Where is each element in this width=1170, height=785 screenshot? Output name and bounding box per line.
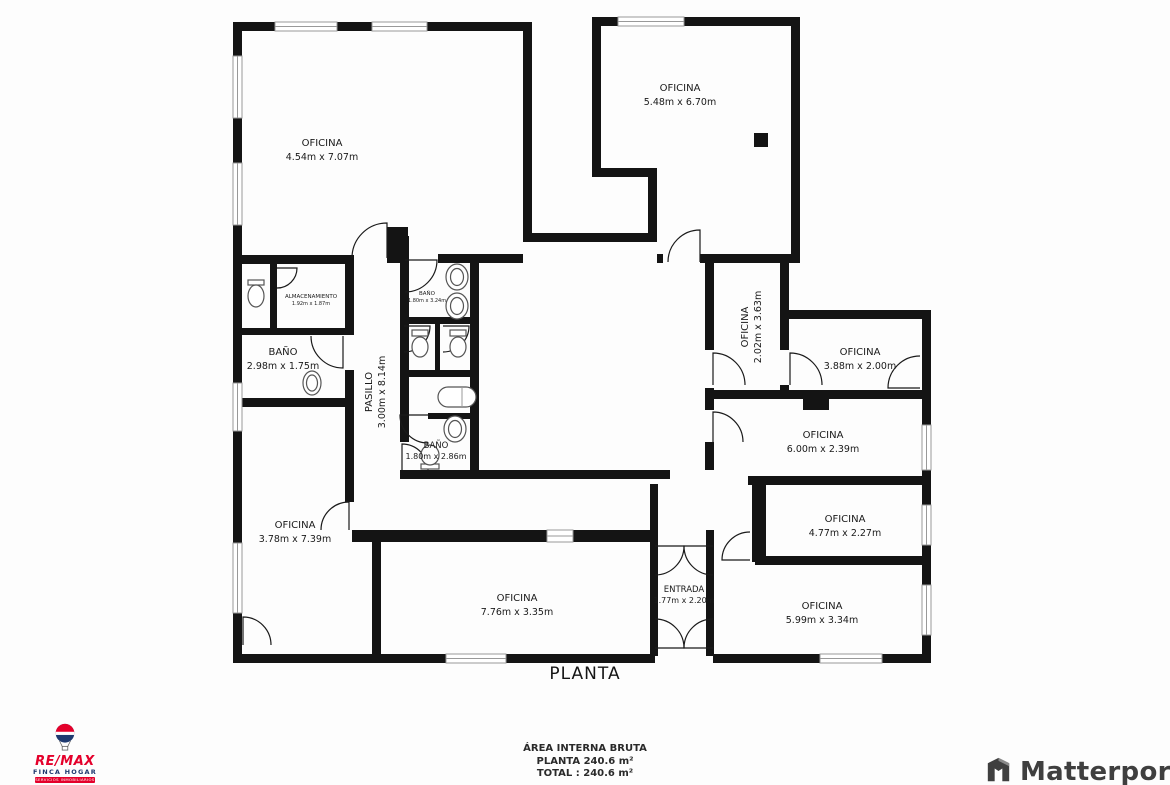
svg-text:OFICINA: OFICINA xyxy=(740,306,751,347)
room-label-bath-top: BAÑO 1.80m x 3.24m xyxy=(408,290,446,304)
room-label-storage: ALMACENAMIENTO 1.92m x 1.87m xyxy=(285,294,338,307)
svg-text:OFICINA: OFICINA xyxy=(840,347,881,358)
remax-wordmark: RE/MAX xyxy=(30,755,100,768)
svg-text:OFICINA: OFICINA xyxy=(803,430,844,441)
room-label-bath-left: BAÑO 2.98m x 1.75m xyxy=(247,345,319,372)
area-summary-planta: PLANTA 240.6 m² xyxy=(470,756,700,769)
svg-text:BAÑO: BAÑO xyxy=(424,440,449,451)
remax-balloon-icon xyxy=(53,723,77,751)
svg-text:5.48m x 6.70m: 5.48m x 6.70m xyxy=(644,97,716,108)
svg-text:5.99m x 3.34m: 5.99m x 3.34m xyxy=(786,615,858,626)
svg-text:1.92m x 1.87m: 1.92m x 1.87m xyxy=(292,301,330,307)
floor-plan: OFICINA 4.54m x 7.07m OFICINA 5.48m x 6.… xyxy=(0,0,1170,710)
walls xyxy=(233,17,931,663)
svg-text:1.80m x 2.86m: 1.80m x 2.86m xyxy=(405,452,466,461)
plan-title: PLANTA xyxy=(485,664,685,684)
windows xyxy=(233,17,931,663)
area-summary-total: TOTAL : 240.6 m² xyxy=(470,768,700,781)
matterport-icon xyxy=(985,757,1012,784)
remax-logo: RE/MAX FINCA HOGAR SERVICIOS INMOBILIARI… xyxy=(30,723,100,783)
room-label-office-378: OFICINA 3.78m x 7.39m xyxy=(259,520,331,545)
svg-text:6.00m x 2.39m: 6.00m x 2.39m xyxy=(787,444,859,455)
svg-text:PASILLO: PASILLO xyxy=(364,372,375,412)
remax-subtitle: FINCA HOGAR xyxy=(30,768,100,776)
svg-text:1.77m x 2.20m: 1.77m x 2.20m xyxy=(653,596,714,605)
svg-text:2.02m x 3.63m: 2.02m x 3.63m xyxy=(753,291,764,363)
svg-text:ALMACENAMIENTO: ALMACENAMIENTO xyxy=(285,294,338,300)
svg-text:3.78m x 7.39m: 3.78m x 7.39m xyxy=(259,534,331,545)
room-label-hallway: PASILLO 3.00m x 8.14m xyxy=(364,356,388,428)
room-label-office-600: OFICINA 6.00m x 2.39m xyxy=(787,430,859,455)
svg-text:BAÑO: BAÑO xyxy=(419,290,436,297)
svg-text:OFICINA: OFICINA xyxy=(302,138,343,149)
svg-text:OFICINA: OFICINA xyxy=(275,520,316,531)
svg-text:OFICINA: OFICINA xyxy=(660,83,701,94)
room-label-bath-bottom: BAÑO 1.80m x 2.86m xyxy=(405,440,466,461)
area-summary-label: ÁREA INTERNA BRUTA xyxy=(470,743,700,756)
svg-text:4.54m x 7.07m: 4.54m x 7.07m xyxy=(286,152,358,163)
matterport-logo: Matterport xyxy=(985,757,1170,785)
remax-tagline: SERVICIOS INMOBILIARIOS xyxy=(35,777,95,783)
svg-text:2.98m x 1.75m: 2.98m x 1.75m xyxy=(247,361,319,372)
room-label-office-776: OFICINA 7.76m x 3.35m xyxy=(481,593,553,618)
matterport-wordmark: Matterport xyxy=(1020,757,1170,785)
area-summary: ÁREA INTERNA BRUTA PLANTA 240.6 m² TOTAL… xyxy=(470,743,700,781)
svg-text:BAÑO: BAÑO xyxy=(268,345,297,358)
svg-text:3.88m x 2.00m: 3.88m x 2.00m xyxy=(824,361,896,372)
room-label-office-477: OFICINA 4.77m x 2.27m xyxy=(809,514,881,539)
room-label-office-388: OFICINA 3.88m x 2.00m xyxy=(824,347,896,372)
svg-text:4.77m x 2.27m: 4.77m x 2.27m xyxy=(809,528,881,539)
room-label-office-599: OFICINA 5.99m x 3.34m xyxy=(786,601,858,626)
svg-text:3.00m x 8.14m: 3.00m x 8.14m xyxy=(377,356,388,428)
svg-text:OFICINA: OFICINA xyxy=(497,593,538,604)
svg-text:OFICINA: OFICINA xyxy=(802,601,843,612)
room-label-office-tr: OFICINA 5.48m x 6.70m xyxy=(644,83,716,108)
svg-text:7.76m x 3.35m: 7.76m x 3.35m xyxy=(481,607,553,618)
svg-text:1.80m x 3.24m: 1.80m x 3.24m xyxy=(408,298,446,304)
svg-text:ENTRADA: ENTRADA xyxy=(664,585,705,595)
room-label-office-tl: OFICINA 4.54m x 7.07m xyxy=(286,138,358,163)
room-label-office-vert: OFICINA 2.02m x 3.63m xyxy=(740,291,764,363)
room-label-entrance: ENTRADA 1.77m x 2.20m xyxy=(653,585,714,605)
floorplan-page: OFICINA 4.54m x 7.07m OFICINA 5.48m x 6.… xyxy=(0,0,1170,785)
svg-text:OFICINA: OFICINA xyxy=(825,514,866,525)
